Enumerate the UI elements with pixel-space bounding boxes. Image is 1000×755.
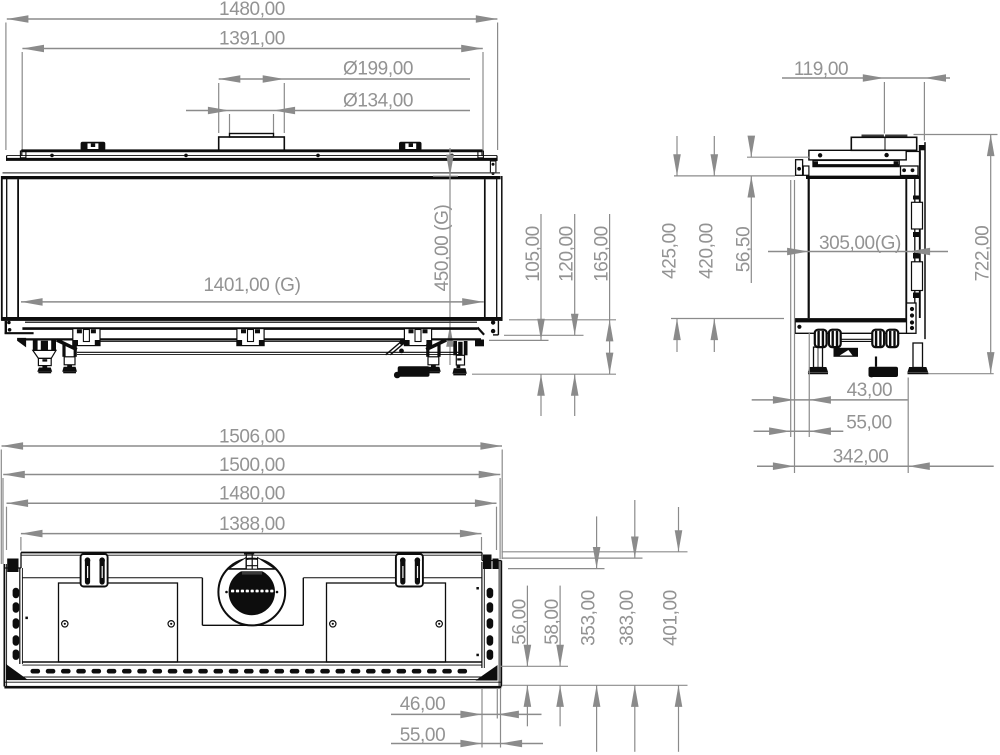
svg-text:1480,00: 1480,00 [219, 484, 285, 505]
svg-text:165,00: 165,00 [592, 226, 613, 282]
svg-text:56,00: 56,00 [509, 599, 530, 645]
svg-text:1388,00: 1388,00 [219, 514, 285, 535]
svg-text:1401,00 (G): 1401,00 (G) [204, 275, 301, 296]
svg-text:119,00: 119,00 [794, 59, 848, 80]
svg-text:43,00: 43,00 [847, 380, 893, 401]
svg-text:342,00: 342,00 [833, 446, 889, 467]
svg-text:55,00: 55,00 [846, 412, 892, 433]
svg-text:1500,00: 1500,00 [219, 455, 285, 476]
svg-text:1480,00: 1480,00 [219, 0, 285, 20]
svg-text:46,00: 46,00 [400, 694, 446, 715]
svg-text:722,00: 722,00 [973, 226, 994, 282]
svg-text:Ø134,00: Ø134,00 [343, 90, 413, 111]
svg-text:353,00: 353,00 [579, 590, 600, 646]
svg-text:1506,00: 1506,00 [219, 427, 285, 448]
svg-text:305,00(G): 305,00(G) [819, 233, 901, 254]
svg-text:1391,00: 1391,00 [219, 29, 285, 50]
svg-text:Ø199,00: Ø199,00 [343, 59, 413, 80]
svg-text:401,00: 401,00 [661, 590, 682, 646]
svg-text:56,50: 56,50 [733, 227, 754, 273]
svg-text:120,00: 120,00 [557, 226, 578, 282]
svg-text:383,00: 383,00 [617, 590, 638, 646]
svg-text:420,00: 420,00 [696, 223, 717, 279]
svg-text:450,00 (G): 450,00 (G) [432, 205, 453, 292]
svg-text:105,00: 105,00 [523, 226, 544, 282]
svg-text:55,00: 55,00 [400, 725, 446, 746]
svg-text:425,00: 425,00 [660, 223, 681, 279]
svg-text:58,00: 58,00 [542, 599, 563, 645]
